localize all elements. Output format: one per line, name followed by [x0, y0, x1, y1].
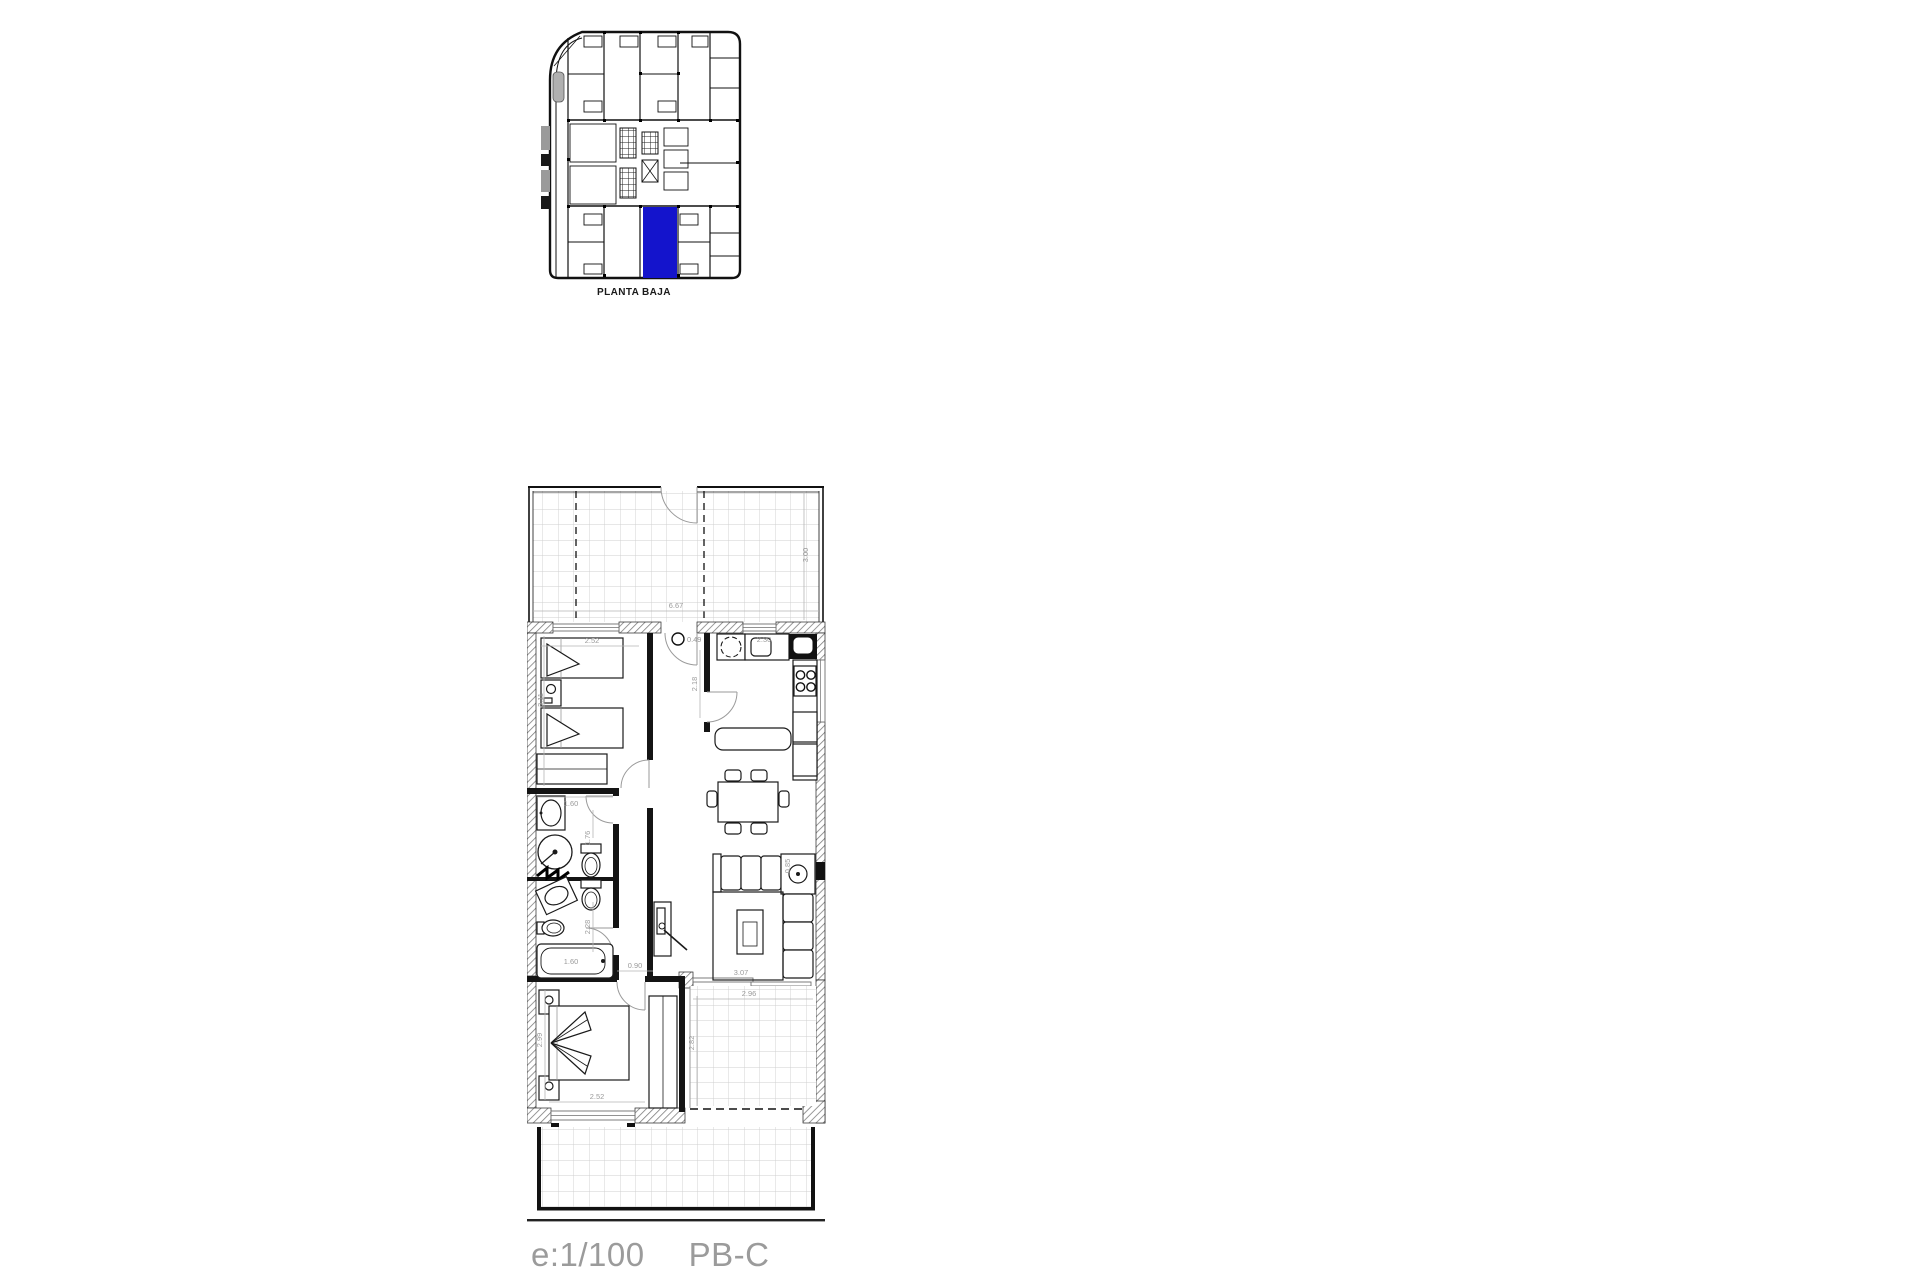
- floor-label: PLANTA BAJA: [597, 287, 671, 298]
- double-bed: [549, 1006, 629, 1080]
- ground-line: [527, 1219, 825, 1221]
- apartment-plan: 6.67 3.00: [527, 478, 830, 1228]
- cabinet: [793, 744, 817, 776]
- utility-vent: [816, 862, 825, 880]
- highlighted-unit: [643, 207, 677, 278]
- chair: [751, 770, 767, 781]
- sofa-cushion: [783, 950, 813, 978]
- overview-plan-drawing: [540, 28, 747, 285]
- dim-bath1-width: 1.60: [564, 799, 578, 808]
- dim-hall-width: 0.90: [628, 961, 642, 970]
- top-terrace: 6.67 3.00: [528, 487, 824, 622]
- toilet2-tank: [581, 880, 601, 888]
- dim-sofa-side: 0.85: [783, 859, 792, 873]
- floorplan-page: PLANTA BAJA: [0, 0, 1920, 1280]
- dim-entry-width: 0.49: [687, 635, 701, 644]
- dining-table: [718, 782, 778, 822]
- unit-code-label: PB-C: [689, 1236, 770, 1273]
- sofa-cushion: [761, 856, 781, 890]
- peninsula-counter: [715, 728, 791, 750]
- sofa-cushion: [741, 856, 761, 890]
- dim-patio-depth: 2.82: [687, 1036, 696, 1050]
- bathroom1: 1.60 1.76: [537, 796, 613, 880]
- patio-sliding-door: [693, 978, 811, 986]
- chair: [725, 823, 741, 834]
- dim-terrace-width: 6.67: [669, 601, 683, 610]
- dim-hall-depth: 2.18: [690, 677, 699, 691]
- chair: [751, 823, 767, 834]
- sofa-cushion: [721, 856, 741, 890]
- living-dining: 3.07 0.85: [654, 770, 815, 980]
- drain-icon: [601, 959, 605, 963]
- fridge: [793, 712, 817, 742]
- dim-living-width: 3.07: [734, 968, 748, 977]
- basin2-counter: [536, 877, 578, 915]
- entry-light-icon: [672, 633, 684, 645]
- chair: [725, 770, 741, 781]
- dim-bedroom1-depth: 3.11: [536, 693, 545, 707]
- kitchen: 2.30: [715, 634, 817, 780]
- dim-bedroom1-width: 2.52: [585, 636, 599, 645]
- dim-bathtub-width: 1.60: [564, 957, 578, 966]
- sofa-cushion: [783, 922, 813, 950]
- dim-bath2-depth: 2.28: [583, 920, 592, 934]
- dim-bedroom2-width: 2.52: [590, 1092, 604, 1101]
- bottom-terrace: [537, 1127, 815, 1211]
- lamp-icon: [545, 996, 553, 1004]
- dim-kitchen-width: 2.30: [757, 635, 771, 644]
- bath1-door: [586, 796, 613, 823]
- dim-bedroom2-depth: 2.99: [535, 1033, 544, 1047]
- bedroom1: 2.52 3.11: [536, 636, 639, 786]
- dim-bath1-depth: 1.76: [583, 831, 592, 845]
- bathroom2: 2.28 1.60: [536, 877, 613, 978]
- sofa-cushion: [783, 894, 813, 922]
- sofa-arm: [713, 854, 721, 892]
- coffee-table: [737, 910, 763, 954]
- dim-terrace-depth: 3.00: [801, 548, 810, 562]
- tv-screen: [657, 908, 665, 934]
- apartment-plan-drawing: 6.67 3.00: [527, 478, 830, 1228]
- building-overview: [540, 28, 747, 285]
- kitchen-door: [707, 692, 737, 722]
- bedroom2: 2.99 2.52: [535, 990, 677, 1108]
- chair: [779, 791, 789, 807]
- patio: 2.82 2.96: [687, 986, 816, 1109]
- chair: [707, 791, 717, 807]
- plan-caption: e:1/100PB-C: [531, 1236, 769, 1274]
- lamp-icon: [545, 1082, 553, 1090]
- dim-patio-width: 2.96: [742, 989, 756, 998]
- lamp-icon: [547, 685, 556, 694]
- scale-label: e:1/100: [531, 1236, 645, 1273]
- bedroom1-door: [621, 760, 649, 788]
